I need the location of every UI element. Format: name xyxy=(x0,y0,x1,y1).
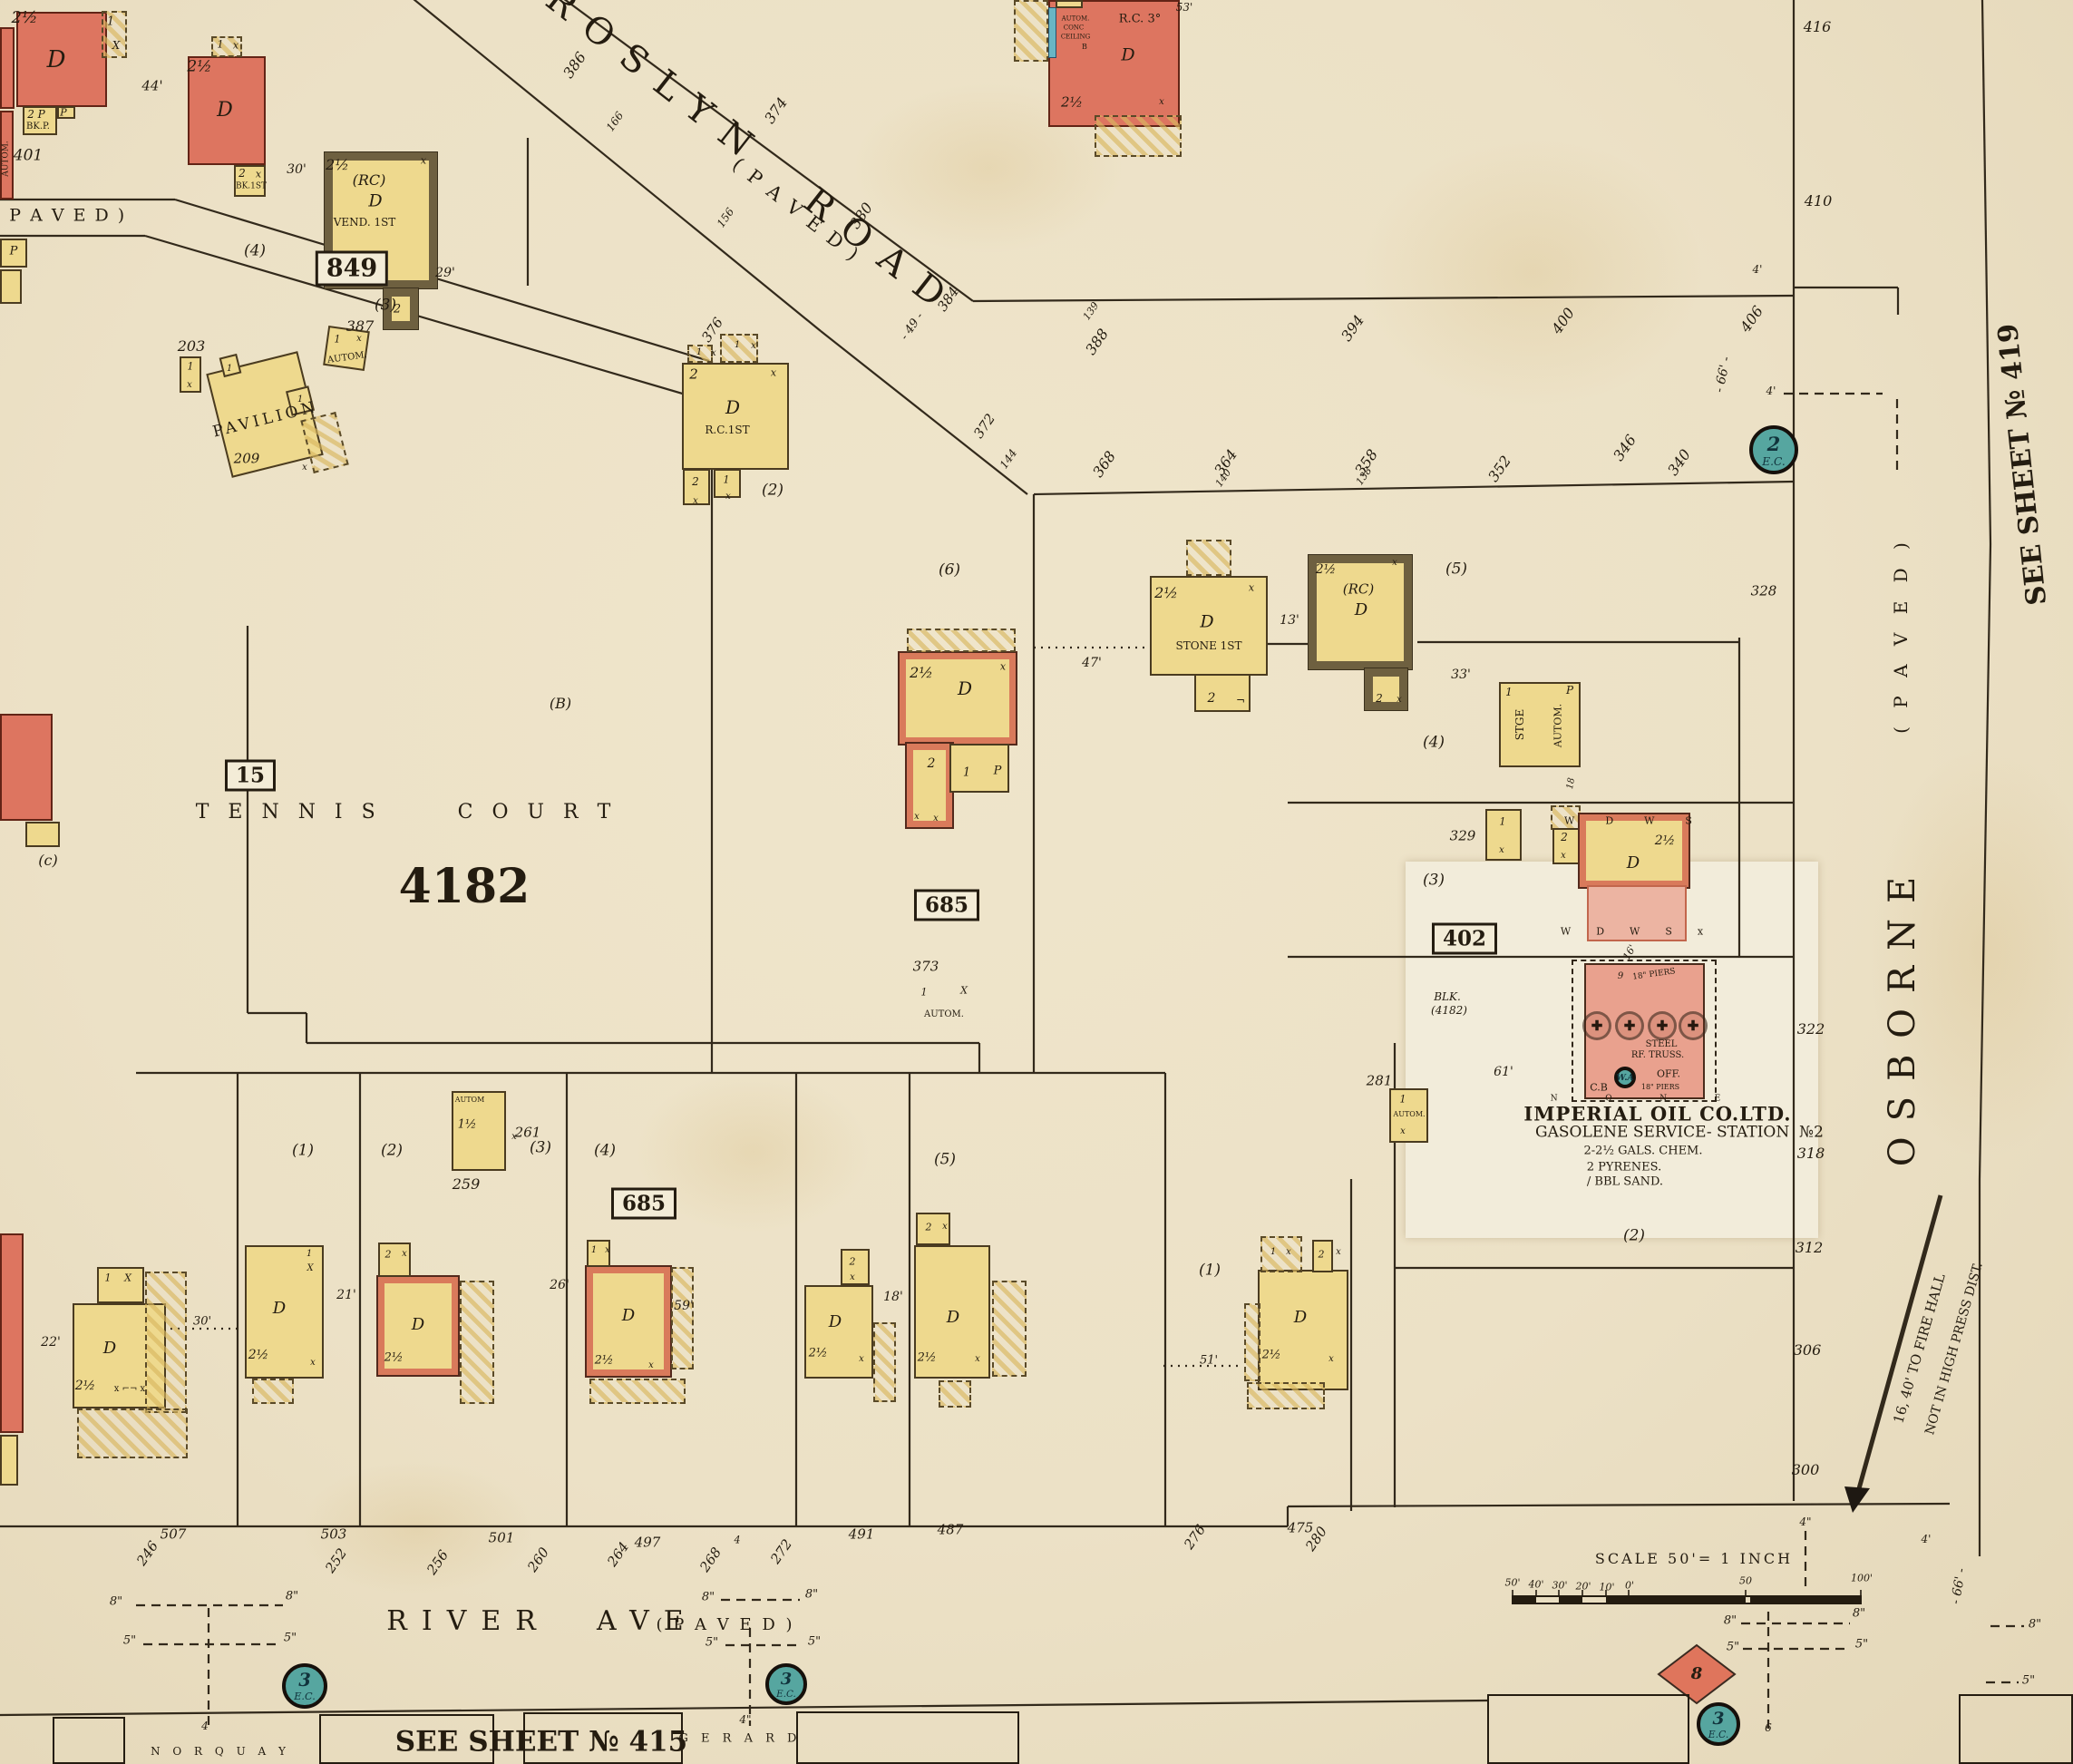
map-label: 1 xyxy=(696,348,702,357)
map-label: AUTOM. xyxy=(924,1010,964,1019)
map-label: x xyxy=(1392,559,1397,568)
map-label: x xyxy=(914,813,920,822)
map-label: 22' xyxy=(41,1336,61,1349)
map-label: (4182) xyxy=(1431,1005,1467,1016)
map-label: BK.P. xyxy=(26,122,50,132)
map-label: C.B xyxy=(1590,1083,1608,1093)
map-label: 1 xyxy=(188,362,194,372)
map-label: x xyxy=(421,156,426,166)
map-label: 5" xyxy=(284,1632,297,1644)
circle-number: W.A xyxy=(1616,1073,1634,1083)
map-label: D xyxy=(47,48,66,72)
circle-caption: E.C. xyxy=(1762,455,1785,468)
map-label: 30' xyxy=(193,1316,211,1328)
map-label: B xyxy=(1082,44,1087,51)
scale-bar-segment xyxy=(1559,1596,1582,1603)
dwelling-491 xyxy=(804,1285,873,1379)
map-label: x xyxy=(1400,1127,1406,1136)
map-label: D xyxy=(217,101,233,121)
map-label: D xyxy=(368,193,382,210)
map-building xyxy=(145,1272,187,1413)
map-label: 2 xyxy=(1208,692,1216,705)
map-label: x xyxy=(1336,1248,1341,1257)
map-building xyxy=(671,1267,694,1369)
scale-title: SCALE 50'= 1 INCH xyxy=(1595,1552,1793,1566)
map-label: 8" xyxy=(1724,1615,1737,1627)
map-label: D xyxy=(273,1301,286,1317)
map-label: 1 xyxy=(921,988,928,998)
map-label: 507 xyxy=(161,1528,187,1542)
map-label: 503 xyxy=(321,1528,347,1542)
map-label: 5" xyxy=(123,1635,136,1647)
map-label: BK.1ST xyxy=(236,183,267,191)
map-label: 2½ xyxy=(1316,563,1336,576)
map-label: x xyxy=(751,342,756,351)
map-label: D xyxy=(1627,855,1640,872)
map-label: x xyxy=(1249,583,1254,593)
map-label: 2 xyxy=(1319,1250,1325,1260)
map-label: 2½ xyxy=(12,10,38,26)
map-label: 5" xyxy=(1855,1639,1868,1651)
map-stage: ✚✚✚✚2E.C.3E.C.3E.C.3E.C.W.AROSLYN ROAD( … xyxy=(0,0,2073,1764)
map-label: X xyxy=(124,1273,131,1283)
map-label: 2½ xyxy=(910,666,933,680)
map-label: OFF. xyxy=(1657,1069,1680,1079)
station-wa-symbol: W.A xyxy=(1614,1067,1636,1088)
map-label: 2 xyxy=(238,168,246,179)
map-label: 2 xyxy=(1561,832,1568,843)
map-label: D xyxy=(958,679,972,697)
map-building xyxy=(1186,540,1231,576)
map-label: 9 xyxy=(1618,972,1623,981)
map-label: (3) xyxy=(1423,873,1445,889)
gas-pump-icon: ✚ xyxy=(1679,1011,1708,1040)
gas-pump-icon: ✚ xyxy=(1648,1011,1677,1040)
map-label: 5" xyxy=(1727,1642,1739,1653)
map-label: 2½ xyxy=(326,158,349,172)
map-label: 487 xyxy=(938,1524,964,1537)
map-label: 1 xyxy=(297,395,303,404)
map-label: 30' xyxy=(1552,1581,1567,1591)
map-label: D xyxy=(947,1310,959,1326)
map-building xyxy=(1056,0,1083,8)
map-label: 2 xyxy=(689,368,698,382)
map-label: x xyxy=(771,368,776,378)
map-label: 18' xyxy=(883,1291,903,1303)
map-label: x xyxy=(1286,1248,1291,1257)
map-label: (4) xyxy=(1423,736,1445,751)
map-label: 4' xyxy=(1753,264,1763,275)
map-label: CONC xyxy=(1064,25,1085,32)
circle-caption: E.C. xyxy=(294,1691,316,1702)
map-label: W D W S xyxy=(1564,816,1700,826)
map-label: 329 xyxy=(1450,830,1476,843)
map-building xyxy=(77,1408,188,1458)
map-label: 20' xyxy=(1575,1582,1591,1592)
map-label: 2½ xyxy=(1262,1350,1281,1361)
map-label: 1 xyxy=(107,16,114,28)
map-label: 306 xyxy=(1794,1343,1822,1358)
map-label: R.C. 3° xyxy=(1119,14,1161,25)
map-label: 4" xyxy=(739,1714,751,1725)
map-label: 1 xyxy=(218,40,224,50)
map-building xyxy=(907,629,1016,652)
map-label: VEND. 1ST xyxy=(334,217,396,228)
scale-bar-segment xyxy=(1606,1596,1746,1603)
map-building xyxy=(992,1281,1027,1377)
map-label: 8" xyxy=(110,1596,122,1608)
map-label: 8" xyxy=(1853,1608,1865,1620)
map-label: (1) xyxy=(1199,1263,1221,1279)
map-label: D xyxy=(829,1314,842,1330)
map-label: (5) xyxy=(934,1153,956,1168)
map-label: 4' xyxy=(1766,385,1776,396)
street-label-osborne-paved: ( P A V E D ) xyxy=(1892,536,1910,734)
map-label: 0' xyxy=(1625,1581,1634,1591)
map-building xyxy=(0,714,53,821)
map-label: 1 xyxy=(1505,687,1513,697)
map-label: D xyxy=(103,1340,116,1357)
map-label: 1 xyxy=(1400,1095,1406,1105)
map-label: (1) xyxy=(292,1144,314,1159)
map-label: x xyxy=(1561,852,1566,861)
map-label: 30' xyxy=(287,163,307,176)
map-label: AUTOM. xyxy=(3,141,11,177)
map-label: x xyxy=(302,463,307,473)
map-line xyxy=(175,200,709,361)
map-label: 387 xyxy=(346,319,375,334)
map-label: 10' xyxy=(1599,1583,1614,1593)
map-label: 5" xyxy=(808,1636,821,1648)
map-label: 50' xyxy=(1504,1578,1520,1588)
map-label: 4 xyxy=(735,1535,741,1545)
map-label: 50 xyxy=(1739,1576,1752,1586)
map-label: (B) xyxy=(550,697,571,711)
map-label: 2½ xyxy=(384,1352,404,1364)
map-building xyxy=(1048,7,1056,58)
map-label: 33' xyxy=(1451,668,1471,681)
street-label-river-paved: ( P A V E D ) xyxy=(656,1617,794,1633)
map-building xyxy=(1244,1303,1260,1381)
map-label: 2-2½ GALS. CHEM. xyxy=(1584,1145,1703,1157)
map-label: 40' xyxy=(1528,1580,1543,1590)
map-label: 259 xyxy=(453,1177,481,1192)
map-label: (RC) xyxy=(1343,583,1374,597)
map-label: x xyxy=(1328,1355,1334,1364)
fire-hall-arrowhead xyxy=(1844,1486,1870,1513)
map-label: P xyxy=(10,246,18,258)
map-label: 261 xyxy=(515,1126,541,1140)
map-label: 51' xyxy=(1200,1355,1218,1367)
map-label: x xyxy=(1000,662,1006,672)
map-label: 1 xyxy=(963,767,970,779)
map-label: P xyxy=(1566,685,1573,696)
map-label: P xyxy=(994,765,1002,777)
map-line xyxy=(821,331,1027,494)
map-label: 2 PYRENES. xyxy=(1587,1162,1661,1174)
map-label: 2½ xyxy=(918,1352,937,1364)
map-label: 2 xyxy=(692,476,699,487)
map-label: x xyxy=(402,1250,407,1259)
scale-bar-segment xyxy=(1513,1596,1536,1603)
map-label: x xyxy=(711,349,716,358)
map-label: 312 xyxy=(1796,1241,1824,1255)
map-label: x xyxy=(975,1355,980,1364)
map-label: 26' xyxy=(550,1279,569,1291)
map-label: R.C.1ST xyxy=(705,424,749,435)
map-label: 416 xyxy=(1804,20,1832,34)
scale-bar-segment xyxy=(1750,1596,1861,1603)
map-label: 1½ xyxy=(458,1119,477,1131)
circle-caption: E.C. xyxy=(1708,1729,1729,1740)
map-label: 13' xyxy=(1280,614,1299,627)
map-building xyxy=(252,1379,294,1404)
map-label: 300 xyxy=(1792,1463,1820,1477)
map-label: 318 xyxy=(1797,1146,1825,1161)
map-label: 322 xyxy=(1797,1022,1825,1037)
map-label: 2 xyxy=(385,1250,392,1260)
street-label-gerard: G E R A R D xyxy=(679,1733,802,1745)
map-label: 410 xyxy=(1805,194,1833,209)
diamond-label: 8 xyxy=(1691,1666,1703,1682)
map-label: D xyxy=(622,1308,635,1324)
map-label: 2½ xyxy=(809,1348,828,1360)
map-label: D xyxy=(1121,47,1134,64)
map-label: 6 xyxy=(1765,1722,1772,1733)
map-building xyxy=(460,1281,494,1404)
map-label: x xyxy=(356,335,362,344)
map-label: 501 xyxy=(489,1532,515,1545)
map-label: 2½ xyxy=(248,1349,268,1361)
stone-dwelling-label: STONE 1ST xyxy=(1176,640,1242,651)
map-building xyxy=(0,269,22,304)
map-building xyxy=(939,1380,971,1408)
map-label: 203 xyxy=(178,339,206,354)
map-label: 59' xyxy=(674,1300,694,1312)
map-label: 4' xyxy=(1922,1534,1932,1545)
map-label: (2) xyxy=(762,483,783,499)
map-label: 1 xyxy=(724,475,730,485)
map-label: 21' xyxy=(336,1289,356,1301)
map-label: (3) xyxy=(375,298,396,314)
street-label-norquay: N O R Q U A Y xyxy=(151,1746,290,1757)
map-label: 61' xyxy=(1494,1066,1513,1078)
map-building xyxy=(1095,115,1182,157)
map-label: 209 xyxy=(234,453,260,466)
map-label: (4) xyxy=(594,1144,616,1159)
map-label: x xyxy=(933,814,939,824)
map-label: x xyxy=(1499,846,1504,855)
map-label: X xyxy=(960,986,968,996)
ec-circle-3a: 3E.C. xyxy=(282,1663,327,1709)
map-label: x xyxy=(725,492,731,502)
map-label: x xyxy=(648,1361,654,1370)
map-label: 2½ xyxy=(187,60,211,75)
map-label: x xyxy=(1159,98,1164,107)
block-number-15: 15 xyxy=(225,760,276,792)
circle-number: 3 xyxy=(1712,1709,1724,1729)
block-number-685: 685 xyxy=(914,890,979,921)
imperial-oil-line2: GASOLENE SERVICE- STATION №2 xyxy=(1535,1126,1824,1141)
map-label: 2 P xyxy=(27,109,45,120)
map-building xyxy=(0,27,15,109)
map-label: 8" xyxy=(702,1592,715,1603)
circle-caption: E.C. xyxy=(776,1689,796,1700)
block-number-4182: 4182 xyxy=(399,863,530,911)
map-label: 401 xyxy=(14,149,43,164)
map-building xyxy=(589,1379,686,1404)
map-label: (2) xyxy=(1623,1229,1645,1244)
map-label: 1 xyxy=(335,335,341,345)
map-label: 1 xyxy=(735,341,740,350)
map-label: x xyxy=(859,1355,864,1364)
map-label: CEILING xyxy=(1061,34,1090,41)
see-sheet-415: SEE SHEET № 415 xyxy=(395,1729,687,1757)
street-label-river-ave: RIVER AVE xyxy=(386,1608,697,1635)
map-label: N O N E xyxy=(1551,1096,1730,1104)
map-label: 2½ xyxy=(595,1355,614,1367)
map-label: 5" xyxy=(2022,1675,2035,1687)
map-label: x xyxy=(233,41,238,51)
map-label: 1 xyxy=(591,1246,597,1255)
circle-number: 3 xyxy=(781,1670,792,1689)
map-label: x xyxy=(187,381,192,390)
map-label: W D W S x xyxy=(1561,927,1709,937)
map-label: (6) xyxy=(939,563,960,579)
map-label: 281 xyxy=(1367,1075,1393,1088)
map-label: X xyxy=(112,40,121,51)
map-building xyxy=(53,1717,125,1764)
block-number-402: 402 xyxy=(1432,923,1497,955)
map-label: 44' xyxy=(141,80,162,93)
map-label: 1 xyxy=(1500,817,1506,827)
map-label: STEEL xyxy=(1646,1040,1678,1049)
map-label: 5" xyxy=(706,1637,718,1649)
map-building xyxy=(378,1243,411,1277)
map-label: x ⌐¬ x xyxy=(114,1385,145,1394)
street-label-osborne: OSBORNE xyxy=(1884,862,1921,1166)
block-number-849: 849 xyxy=(316,251,388,287)
map-label: 373 xyxy=(913,960,939,974)
map-label: 18" PIERS xyxy=(1641,1084,1679,1091)
map-label: 1 xyxy=(227,365,232,374)
map-label: 53' xyxy=(1176,2,1193,13)
map-label: (2) xyxy=(381,1144,403,1159)
circle-number: 3 xyxy=(298,1670,311,1691)
map-label: P xyxy=(60,108,66,118)
map-label: 2½ xyxy=(1061,96,1083,110)
map-building xyxy=(0,1233,24,1433)
map-building xyxy=(1487,1694,1689,1764)
map-label: X xyxy=(307,1264,313,1273)
map-label: 29' xyxy=(435,267,455,279)
map-line xyxy=(973,296,1794,301)
tennis-court-label: T E N N I S C O U R T xyxy=(196,803,618,823)
map-label: 47' xyxy=(1082,657,1102,669)
ec-circle-2: 2E.C. xyxy=(1749,425,1798,474)
map-label: 8" xyxy=(2029,1619,2041,1631)
imperial-oil-title: IMPERIAL OIL CO.LTD. xyxy=(1523,1105,1791,1124)
map-label: 2½ xyxy=(1154,586,1178,600)
dwelling-475 xyxy=(1258,1270,1348,1390)
map-label: 2 xyxy=(850,1257,856,1267)
map-label: (4) xyxy=(244,244,266,259)
map-building xyxy=(0,1435,18,1486)
map-label: STGE xyxy=(1514,709,1525,741)
map-label: / BBL SAND. xyxy=(1587,1176,1663,1188)
map-label: x xyxy=(1397,696,1402,705)
map-label: 328 xyxy=(1751,585,1777,599)
map-line xyxy=(1980,544,1990,1179)
map-building xyxy=(796,1711,1019,1764)
map-label: D xyxy=(725,398,740,416)
map-label: AUTOM. xyxy=(1062,16,1090,23)
map-label: 8" xyxy=(805,1589,818,1601)
ec-circle-3b: 3E.C. xyxy=(765,1663,807,1705)
map-label: x xyxy=(605,1246,610,1255)
map-label: (c) xyxy=(38,853,57,868)
map-label: 4" xyxy=(1799,1516,1811,1527)
map-label: (5) xyxy=(1445,562,1467,578)
map-line xyxy=(1982,0,1990,544)
map-building xyxy=(1247,1382,1325,1409)
map-label: 1 xyxy=(105,1273,112,1283)
map-label: (RC) xyxy=(353,173,386,188)
map-label: D xyxy=(1294,1310,1307,1326)
map-label: 2 xyxy=(928,757,936,770)
map-label: 491 xyxy=(849,1528,875,1542)
map-label: 2 xyxy=(926,1223,932,1233)
map-label: BLK. xyxy=(1434,991,1461,1002)
map-label: D xyxy=(1355,602,1367,619)
map-building xyxy=(1959,1694,2073,1764)
map-label: AUTOM. xyxy=(1553,704,1563,747)
map-label: AUTOM xyxy=(455,1096,485,1104)
map-label: x xyxy=(693,497,698,506)
street-label-left-paved: ( P A V E D ) xyxy=(0,208,126,225)
map-building xyxy=(25,822,60,847)
map-label: D xyxy=(412,1317,424,1333)
map-label: ¬ xyxy=(1236,695,1245,706)
map-label: 2½ xyxy=(1655,834,1675,847)
map-label: x xyxy=(310,1359,316,1368)
map-building xyxy=(1260,1236,1302,1272)
block-number-685b: 685 xyxy=(611,1188,676,1220)
map-label: x xyxy=(850,1273,855,1282)
map-label: 2½ xyxy=(75,1379,95,1392)
map-label: 4 xyxy=(201,1720,209,1731)
circle-number: 2 xyxy=(1767,433,1781,455)
map-label: D xyxy=(1200,614,1213,631)
map-label: 8" xyxy=(286,1591,298,1603)
map-line xyxy=(1034,482,1794,494)
map-label: 1 xyxy=(1270,1248,1276,1257)
map-label: 1 xyxy=(307,1250,312,1259)
map-label: 100' xyxy=(1851,1574,1873,1584)
map-label: x xyxy=(942,1223,948,1232)
map-label: (3) xyxy=(530,1141,551,1156)
map-building xyxy=(873,1322,896,1402)
map-label: 497 xyxy=(635,1536,661,1550)
map-label: RF. TRUSS. xyxy=(1631,1051,1684,1060)
map-label: 2 xyxy=(1376,693,1383,704)
ec-circle-3c: 3E.C. xyxy=(1697,1702,1740,1746)
map-building xyxy=(1014,0,1048,62)
map-label: AUTOM. xyxy=(1393,1111,1425,1118)
gas-pump-icon: ✚ xyxy=(1582,1011,1611,1040)
gas-pump-icon: ✚ xyxy=(1615,1011,1644,1040)
map-label: x xyxy=(256,170,261,180)
